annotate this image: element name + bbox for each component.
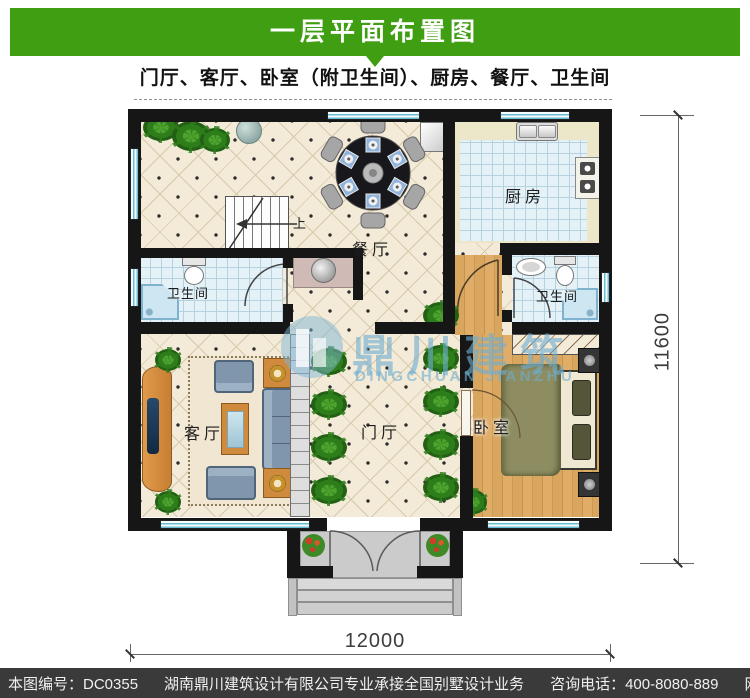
dimension-bottom-line (130, 654, 611, 655)
watermark-logo-building-2 (313, 338, 326, 367)
wall-bathright-left-a (502, 255, 512, 275)
stairs-up-label: 上 (293, 213, 307, 232)
stove (575, 157, 601, 199)
sink-inner (522, 262, 540, 272)
left-bath-door-arc (243, 262, 291, 308)
footer-website: 网址：www.bstzcs.com (744, 673, 750, 694)
toilet-tank-left-bath (182, 257, 206, 266)
dimension-right-ext-bottom (640, 563, 694, 564)
pillow-bottom (572, 424, 591, 460)
step-3 (297, 602, 453, 615)
hall-label: 门厅 (361, 419, 401, 443)
toilet-bowl-right-bath (556, 265, 574, 286)
bath-left-label: 卫生间 (167, 283, 209, 302)
window-top-dining (327, 111, 420, 120)
wall-kitchen-left (443, 109, 455, 255)
window-left-bath (130, 268, 139, 307)
kitchen-label: 厨房 (505, 183, 545, 207)
hall-plant-right-5 (423, 474, 459, 501)
sofa-double-bottom (206, 466, 256, 500)
burner-top (580, 162, 595, 175)
sink-right-bath (516, 258, 546, 276)
hall-plant-left-4 (311, 477, 347, 504)
watermark-logo-building (296, 329, 309, 367)
wall-bathleft-top (140, 248, 353, 258)
footer-bar: 本图编号：DC0355 湖南鼎川建筑设计有限公司专业承接全国别墅设计业务 咨询电… (0, 668, 750, 698)
dimension-right-line (678, 115, 679, 564)
page: { "header": { "title": "一层平面布置图" }, "sub… (0, 0, 750, 698)
side-table-bottom-dish (269, 475, 286, 492)
footer-company: 湖南鼎川建筑设计有限公司专业承接全国别墅设计业务 (164, 673, 524, 694)
step-rail-left (288, 578, 297, 616)
living-plant-top (155, 349, 181, 371)
toilet-tank-right-bath (554, 256, 576, 265)
sink-basin-left (519, 125, 537, 138)
window-top-kitchen (500, 111, 570, 120)
nightstand-bottom-lamp (584, 479, 595, 490)
side-table-top-dish (269, 365, 286, 382)
living-plant-bottom (155, 491, 181, 513)
nightstand-bottom (578, 472, 601, 497)
vanity-basin (311, 258, 336, 283)
dimension-right-value: 11600 (652, 307, 675, 377)
wall-bathleft-right-a (283, 256, 293, 268)
coffee-table-glass (227, 411, 244, 448)
pillow-top (572, 380, 591, 416)
bedroom-label: 卧室 (473, 414, 513, 438)
sink-basin-right (538, 125, 556, 138)
window-bottom-living (160, 520, 310, 529)
wall-right (599, 109, 612, 531)
footer-phone: 咨询电话：400-8080-889 (550, 673, 718, 694)
watermark-subtitle: DINGCHUAN JIANZHU (355, 368, 575, 385)
flower-pot-right (426, 534, 449, 557)
coffee-table (221, 403, 249, 455)
burner-bottom (580, 180, 595, 193)
footer-serial: 本图编号：DC0355 (8, 673, 138, 694)
sofa-single-top (214, 360, 254, 393)
dining-label: 餐厅 (352, 236, 392, 260)
corridor-door-arc (456, 258, 502, 320)
tv-screen (147, 398, 159, 454)
bath-right-label: 卫生间 (536, 286, 578, 305)
window-left-dining (130, 148, 139, 220)
step-1 (297, 578, 453, 590)
hall-plant-right-4 (423, 431, 459, 458)
step-rail-right (453, 578, 462, 616)
window-bottom-bedroom (487, 520, 580, 529)
nightstand-top-lamp (584, 355, 595, 366)
porch-wing-left-h (287, 566, 333, 578)
corner-plant-3 (200, 128, 230, 152)
watermark-logo (281, 316, 343, 378)
dimension-bottom-value: 12000 (338, 630, 412, 653)
kitchen-sink (516, 122, 558, 141)
hall-plant-left-2 (311, 391, 347, 418)
wall-bathleft-right-b (283, 304, 293, 322)
flower-pot-left (302, 534, 325, 557)
hall-plant-left-3 (311, 434, 347, 461)
dimension-right-ext-top (640, 115, 694, 116)
wall-bedroom-left-b (460, 436, 473, 518)
window-right-bath (601, 272, 610, 303)
wall-bathleft-bottom (128, 322, 290, 334)
overhang-dashed-line (134, 99, 612, 100)
wall-kitchen-bottom (500, 243, 600, 255)
hall-plant-right-3 (423, 388, 459, 415)
living-label: 客厅 (184, 420, 224, 444)
dining-table-set (316, 116, 430, 230)
nightstand-top (578, 348, 601, 373)
floor-plan: 上 (0, 0, 750, 660)
step-2 (297, 590, 453, 602)
porch-wing-right-h (417, 566, 463, 578)
side-table-bottom (263, 468, 291, 498)
